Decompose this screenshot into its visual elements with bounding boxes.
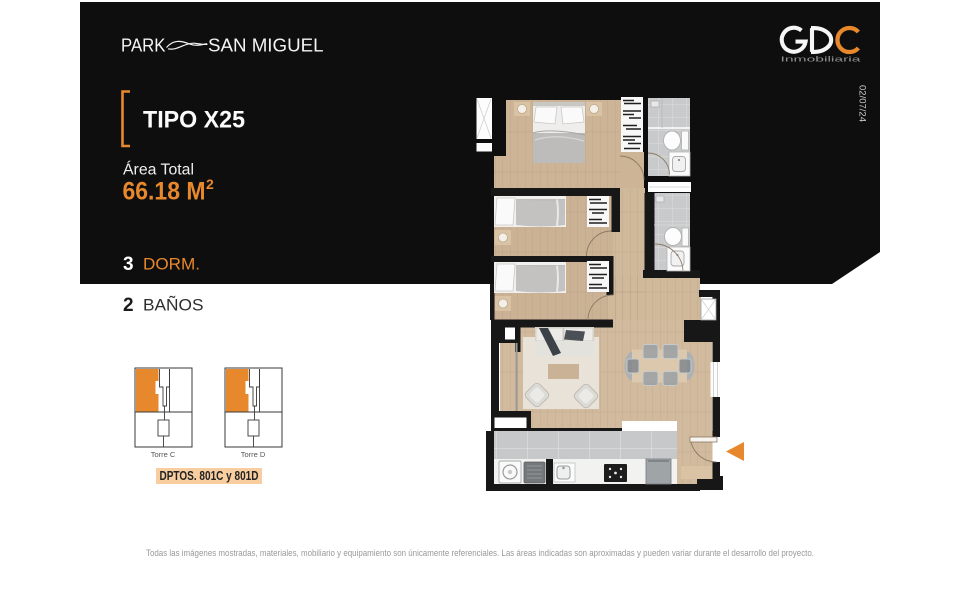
svg-text:DORM.: DORM. [143,256,200,274]
svg-text:Torre D: Torre D [241,450,266,459]
svg-text:Inmobiliaria: Inmobiliaria [781,55,863,64]
svg-text:Todas las imágenes mostradas,: Todas las imágenes mostradas, materiales… [146,548,814,558]
svg-text:66.18 M: 66.18 M [123,178,206,206]
svg-text:2: 2 [206,176,214,192]
svg-text:Área Total: Área Total [123,162,194,179]
svg-text:3: 3 [123,254,134,275]
svg-text:DPTOS. 801C y 801D: DPTOS. 801C y 801D [160,469,259,483]
svg-text:SAN MIGUEL: SAN MIGUEL [208,35,324,56]
svg-text:2: 2 [123,295,134,316]
svg-text:BAÑOS: BAÑOS [143,295,204,315]
svg-text:PARK: PARK [121,35,166,56]
svg-text:Torre C: Torre C [151,450,176,459]
svg-text:TIPO X25: TIPO X25 [143,107,245,134]
svg-text:02/07/24: 02/07/24 [857,85,868,122]
